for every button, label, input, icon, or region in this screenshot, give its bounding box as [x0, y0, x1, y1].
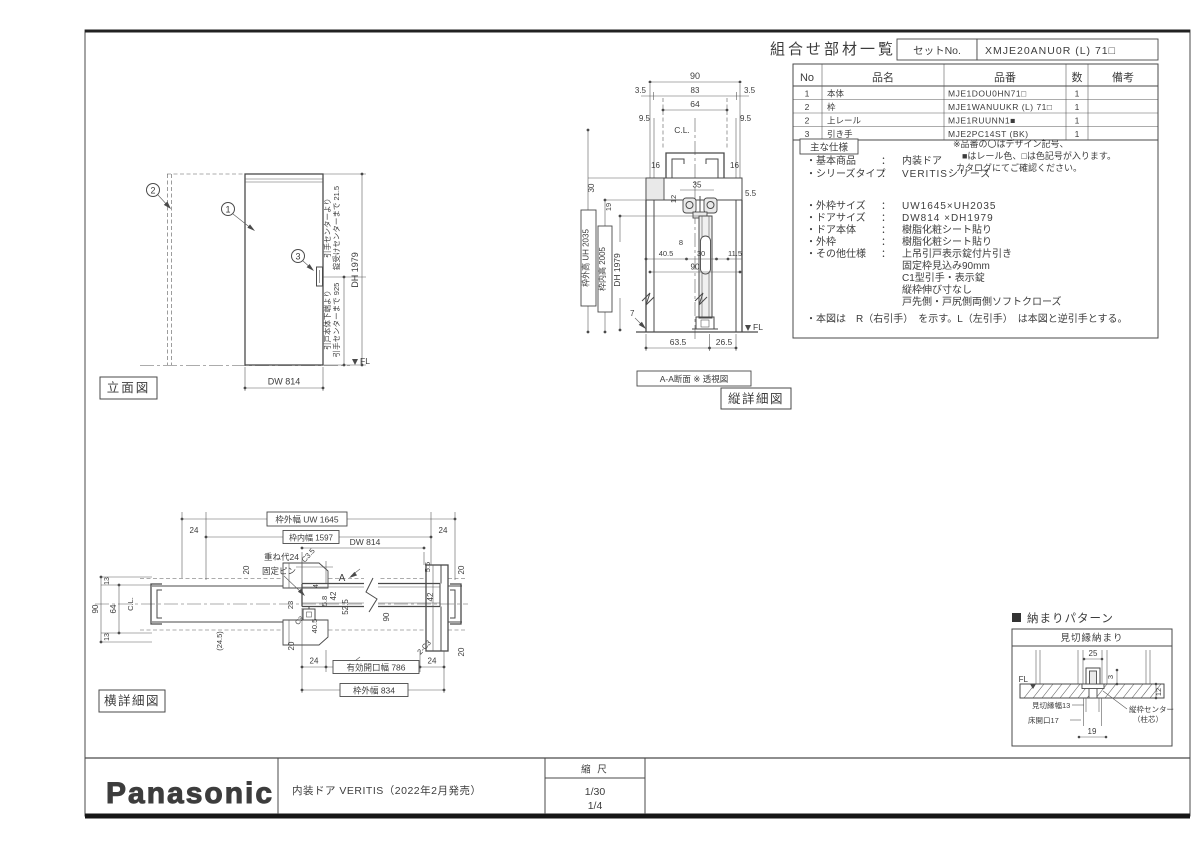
row2-part-no: MJE1WANUUKR (L) 71□ — [948, 102, 1053, 112]
dim-8: 8 — [679, 238, 683, 247]
dim-40-5: 40.5 — [310, 619, 319, 634]
spec-frame-size-label: ・外枠サイズ — [806, 199, 866, 212]
dim-90-left: 90 — [91, 604, 100, 613]
col-header-name: 品名 — [872, 70, 894, 84]
dim-35: 35 — [693, 181, 702, 190]
spec-colon: ： — [881, 237, 891, 248]
dim-7: 7 — [630, 309, 635, 318]
dim-door-height: DH 1979 — [612, 253, 622, 287]
dim-42-left: 42 — [329, 591, 338, 600]
dim-12: 12 — [669, 195, 678, 203]
dim-64: 64 — [109, 604, 118, 613]
dim-23: 23 — [286, 601, 295, 609]
fixed-pin — [303, 607, 315, 621]
floor-opening-note: 床開口17 — [1028, 715, 1059, 725]
center-note-line2: （柱芯） — [1133, 714, 1163, 724]
floor-level-marker — [352, 359, 358, 365]
section-caption: A-A断面 ※ 透視図 — [660, 374, 729, 384]
pattern-panel: 納まりパターン 見切縁納まり FL 25 3 — [1012, 612, 1174, 746]
spec-colon: ： — [881, 156, 891, 167]
fixed-pin-note: 固定ピン — [262, 566, 296, 576]
dim-20-right-bottom: 20 — [457, 647, 466, 656]
panasonic-logo: Panasonic — [106, 777, 274, 810]
spec-series-label: ・シリーズタイプ — [806, 167, 886, 180]
spec-other-label: ・その他仕様 — [806, 247, 866, 260]
spec-basic-label: ・基本商品 — [806, 154, 856, 167]
spec-items: ・基本商品 ： 内装ドア ・シリーズタイプ ： VERITISシリーズ ・外枠サ… — [806, 154, 1127, 325]
table-row: 1 本体 MJE1DOU0HN71□ 1 — [805, 89, 1080, 99]
dim-5-5: 5.5 — [745, 189, 757, 198]
set-no-value: XMJE20ANU0R (L) 71□ — [985, 45, 1116, 57]
dim-handle-to-lock-note-2: 錠受けセンターまで 21.5 — [331, 186, 341, 270]
floor-level-text: FL — [1019, 675, 1029, 684]
table-row: 2 枠 MJE1WANUUKR (L) 71□ 1 — [805, 102, 1080, 112]
table-row: 2 上レール MJE1RUUNN1■ 1 — [805, 116, 1080, 126]
spec-door-size-label: ・ドアサイズ — [806, 211, 866, 224]
dim-90-mid: 90 — [382, 612, 391, 621]
dim-24-5: (24.5) — [215, 631, 224, 651]
row1-name: 本体 — [827, 89, 845, 99]
hanger-rollers — [683, 196, 717, 218]
floor-level-text: FL — [360, 356, 370, 366]
fixed-frame-lower — [283, 620, 328, 645]
dim-frame-inner-height: 枠内高 2005 — [597, 246, 607, 291]
row1-qty: 1 — [1075, 89, 1080, 99]
scale-value-2: 1/4 — [588, 800, 603, 812]
dim-64: 64 — [690, 99, 700, 109]
row2-no: 2 — [805, 102, 810, 112]
dim-door-height: DH 1979 — [350, 252, 360, 288]
row4-part-no: MJE2PC14ST (BK) — [948, 129, 1029, 139]
dim-20-bottom-left: 20 — [287, 641, 296, 650]
dim-frame-outer-width: 枠外幅 UW 1645 — [275, 515, 339, 525]
dim-11-5: 11.5 — [728, 249, 742, 258]
dim-19: 19 — [604, 203, 613, 211]
scale-label: 縮 尺 — [581, 764, 609, 776]
col-header-remarks: 備考 — [1112, 71, 1134, 84]
dim-3-5-right: 3.5 — [744, 86, 756, 95]
horizontal-section-drawing: 枠外幅 UW 1645 24 24 枠内幅 1597 DW 814 重ね代24 … — [91, 512, 468, 712]
table-row: 3 引き手 MJE2PC14ST (BK) 1 — [805, 129, 1080, 139]
vertical-section-label: 縦詳細図 — [728, 391, 784, 406]
center-line-label: C.L. — [126, 597, 135, 611]
spec-series-value: VERITISシリーズ — [902, 167, 991, 180]
dim-9-5-right: 9.5 — [740, 114, 752, 123]
drawing-canvas: 組合せ部材一覧表 セットNo. XMJE20ANU0R (L) 71□ No 品… — [0, 0, 1200, 849]
spec-other-value-4: 縦枠伸び寸なし — [902, 283, 972, 296]
scale-value-1: 1/30 — [585, 786, 606, 798]
col-header-qty: 数 — [1072, 71, 1083, 84]
row3-name: 上レール — [827, 116, 862, 126]
dim-9-5-left: 9.5 — [639, 114, 651, 123]
dim-wall-90: 90 — [690, 71, 700, 81]
dim-30-left: 30 — [587, 183, 596, 192]
dim-frame-outer-width-2: 枠外幅 834 — [353, 686, 395, 696]
dim-26-5: 26.5 — [716, 337, 733, 347]
spec-other-value-2: 固定枠見込み90mm — [902, 259, 990, 272]
row3-qty: 1 — [1075, 116, 1080, 126]
dim-16-right: 16 — [730, 161, 739, 170]
trim-width-note: 見切縁幅13 — [1032, 700, 1070, 710]
spec-other-value-5: 戸先側・戸尻側両側ソフトクローズ — [902, 295, 1062, 308]
title-block: Panasonic 内装ドア VERITIS（2022年2月発売） 縮 尺 1/… — [85, 758, 1190, 814]
dim-3: 3 — [1106, 675, 1115, 679]
dim-30-mid: 30 — [697, 249, 705, 258]
dim-13-top: 13 — [104, 577, 111, 585]
vertical-section-drawing: 90 3.5 83 3.5 64 9.5 9.5 C.L. 16 16 35 5… — [581, 71, 792, 409]
callout-2-number: 2 — [150, 186, 155, 196]
part-no-note-line1: ※品番の〇はデザイン記号、 — [953, 138, 1069, 149]
dim-20-top-left: 20 — [242, 565, 251, 574]
receiving-jamb — [426, 565, 448, 651]
dim-13-bottom: 13 — [104, 633, 111, 641]
row2-name: 枠 — [827, 102, 836, 112]
dim-16-left: 16 — [651, 161, 660, 170]
dim-frame-inner-width: 枠内幅 1597 — [289, 533, 334, 543]
parts-table-title: 組合せ部材一覧表 — [770, 41, 914, 58]
section-bullet — [1012, 613, 1021, 622]
callout-3: 3 — [292, 250, 315, 272]
trim-cap — [1082, 668, 1104, 698]
spec-colon: ： — [881, 201, 891, 212]
dim-25: 25 — [1089, 649, 1098, 658]
dim-5-8: 5.8 — [320, 596, 329, 606]
spec-other-value-3: C1型引手・表示錠 — [902, 271, 985, 284]
spec-other-value-1: 上吊引戸表示錠付片引き — [902, 247, 1012, 260]
floor-guide — [692, 317, 718, 329]
floor-level-marker — [1030, 684, 1036, 689]
dim-20-right-top: 20 — [457, 565, 466, 574]
spec-door-size-value: DW814 ×DH1979 — [902, 213, 994, 224]
dim-effective-opening: 有効開口幅 786 — [346, 663, 405, 673]
drawing-sheet: 組合せ部材一覧表 セットNo. XMJE20ANU0R (L) 71□ No 品… — [0, 0, 1200, 849]
spec-frame-size-value: UW1645×UH2035 — [902, 201, 996, 212]
dim-handle-height-note-2: 引手センターまで 925 — [331, 283, 341, 358]
spec-outer-frame-value: 樹脂化粧シート貼り — [902, 235, 992, 248]
elevation-label: 立面図 — [107, 380, 151, 395]
dim-19: 19 — [1088, 727, 1097, 736]
row4-qty: 1 — [1075, 129, 1080, 139]
overlap-note: 重ね代24 — [264, 552, 299, 562]
dim-63-5: 63.5 — [670, 337, 687, 347]
dim-4: 4 — [313, 584, 320, 588]
floor-level-marker — [745, 325, 751, 331]
dim-handle-to-lock-note-1: 引手センターより — [322, 198, 332, 258]
spec-door-body-value: 樹脂化粧シート貼り — [902, 223, 992, 236]
spec-outer-frame-label: ・外枠 — [806, 235, 836, 248]
dim-door-width: DW 814 — [350, 537, 381, 547]
callout-1: 1 — [222, 203, 256, 232]
dim-24-bottom-right: 24 — [428, 657, 437, 666]
horizontal-section-label: 横詳細図 — [104, 693, 160, 708]
spec-colon: ： — [881, 169, 891, 180]
dim-24-top-left: 24 — [190, 526, 199, 535]
spec-colon: ： — [881, 213, 891, 224]
spec-basic-value: 内装ドア — [902, 154, 942, 167]
dim-83: 83 — [691, 86, 700, 95]
chamfer-2c3: 2-C3 — [415, 638, 433, 656]
dim-handle-height-note-1: 引戸本体下端より — [322, 290, 332, 350]
row3-part-no: MJE1RUUNN1■ — [948, 116, 1016, 126]
center-line-label: C.L. — [674, 125, 690, 135]
row1-no: 1 — [805, 89, 810, 99]
product-line-title: 内装ドア VERITIS（2022年2月発売） — [292, 784, 481, 797]
spec-section-label: 主な仕様 — [810, 142, 849, 154]
dim-frame-outer-height: 枠外高 UH 2035 — [581, 229, 591, 287]
row1-part-no: MJE1DOU0HN71□ — [948, 89, 1027, 99]
dim-door-width: DW 814 — [268, 377, 301, 387]
set-no-label: セットNo. — [913, 45, 961, 57]
dim-24-top-right: 24 — [439, 526, 448, 535]
pattern-header: 納まりパターン — [1027, 612, 1114, 625]
row3-no: 2 — [805, 116, 810, 126]
callout-3-number: 3 — [295, 252, 300, 262]
center-note-line1: 縦枠センター — [1129, 704, 1174, 714]
part-no-note-line2: ■はレール色、□は色記号が入ります。 — [962, 150, 1116, 161]
dim-42-right: 42 — [426, 592, 435, 601]
spec-footnote: ・本図は R（右引手） を示す。L（左引手） は本図と逆引手とする。 — [806, 312, 1127, 325]
row4-no: 3 — [805, 129, 810, 139]
spec-colon: ： — [881, 225, 891, 236]
section-mark-a-top: A — [339, 573, 346, 584]
pattern-box-title: 見切縁納まり — [1060, 632, 1123, 644]
dim-90-mid: 90 — [691, 263, 700, 272]
row4-name: 引き手 — [827, 129, 853, 139]
dim-52-5: 52.5 — [341, 599, 350, 615]
elevation-drawing: 2 1 3 引手センターより 錠受けセンターまで 21.5 引戸本体下端より 引… — [100, 173, 370, 399]
row2-qty: 1 — [1075, 102, 1080, 112]
dim-12: 12 — [1154, 688, 1163, 696]
col-header-part-no: 品番 — [994, 71, 1016, 84]
dim-5-5: 5.5 — [423, 562, 432, 572]
col-header-no: No — [800, 72, 814, 84]
floor-level-text: FL — [753, 322, 763, 332]
spec-colon: ： — [881, 249, 891, 260]
dim-40-5: 40.5 — [659, 249, 674, 258]
dim-3-5-left: 3.5 — [635, 86, 647, 95]
break-mark — [642, 293, 654, 305]
dim-24-bottom-left: 24 — [310, 657, 319, 666]
spec-door-body-label: ・ドア本体 — [806, 223, 856, 236]
callout-1-number: 1 — [225, 205, 230, 215]
